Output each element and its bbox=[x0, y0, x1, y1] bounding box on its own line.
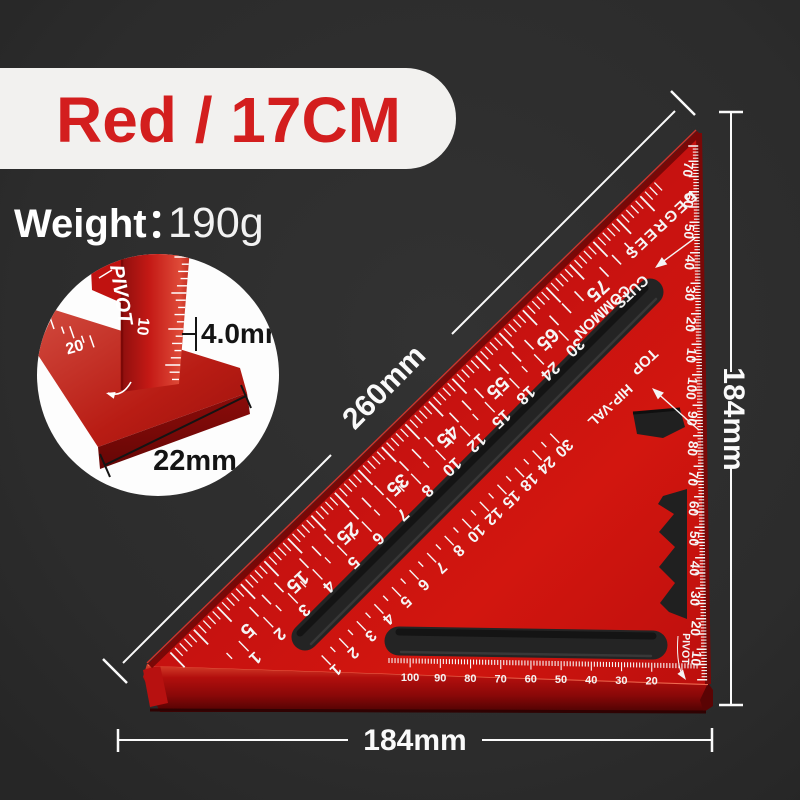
svg-text:20: 20 bbox=[645, 675, 657, 687]
weight-row: Weight： 190g bbox=[14, 199, 264, 247]
svg-text:40: 40 bbox=[681, 254, 697, 271]
svg-text:50: 50 bbox=[681, 223, 697, 240]
inset-width-label: 22mm bbox=[153, 445, 237, 477]
dim-right-label: 184mm bbox=[717, 367, 750, 470]
variant-banner: Red / 17CM bbox=[0, 68, 456, 169]
svg-text:80: 80 bbox=[684, 440, 700, 457]
svg-text:30: 30 bbox=[682, 285, 698, 302]
svg-text:20: 20 bbox=[682, 316, 698, 333]
svg-text:40: 40 bbox=[686, 560, 702, 577]
svg-text:50: 50 bbox=[686, 530, 702, 547]
svg-text:100: 100 bbox=[683, 376, 700, 400]
svg-text:30: 30 bbox=[687, 590, 703, 607]
svg-text:10: 10 bbox=[683, 347, 699, 364]
pivot-edge-label: PIVOT bbox=[679, 633, 692, 665]
svg-text:70: 70 bbox=[680, 161, 696, 178]
product-image: 260mm 184mm 184mm 51525 bbox=[0, 0, 800, 800]
svg-text:30: 30 bbox=[615, 675, 627, 687]
weight-label: Weight： bbox=[14, 202, 187, 246]
svg-text:60: 60 bbox=[525, 674, 537, 686]
weight-value: 190g bbox=[168, 199, 264, 247]
svg-text:50: 50 bbox=[555, 674, 567, 686]
svg-text:60: 60 bbox=[685, 500, 701, 517]
svg-text:70: 70 bbox=[685, 470, 701, 487]
svg-text:40: 40 bbox=[585, 675, 597, 687]
dim-bottom-label: 184mm bbox=[363, 724, 466, 757]
variant-title: Red / 17CM bbox=[56, 84, 401, 156]
svg-text:100: 100 bbox=[401, 672, 419, 684]
svg-text:90: 90 bbox=[434, 672, 446, 684]
bottom-slot bbox=[399, 632, 653, 656]
svg-text:70: 70 bbox=[494, 673, 506, 685]
svg-text:80: 80 bbox=[464, 673, 476, 685]
